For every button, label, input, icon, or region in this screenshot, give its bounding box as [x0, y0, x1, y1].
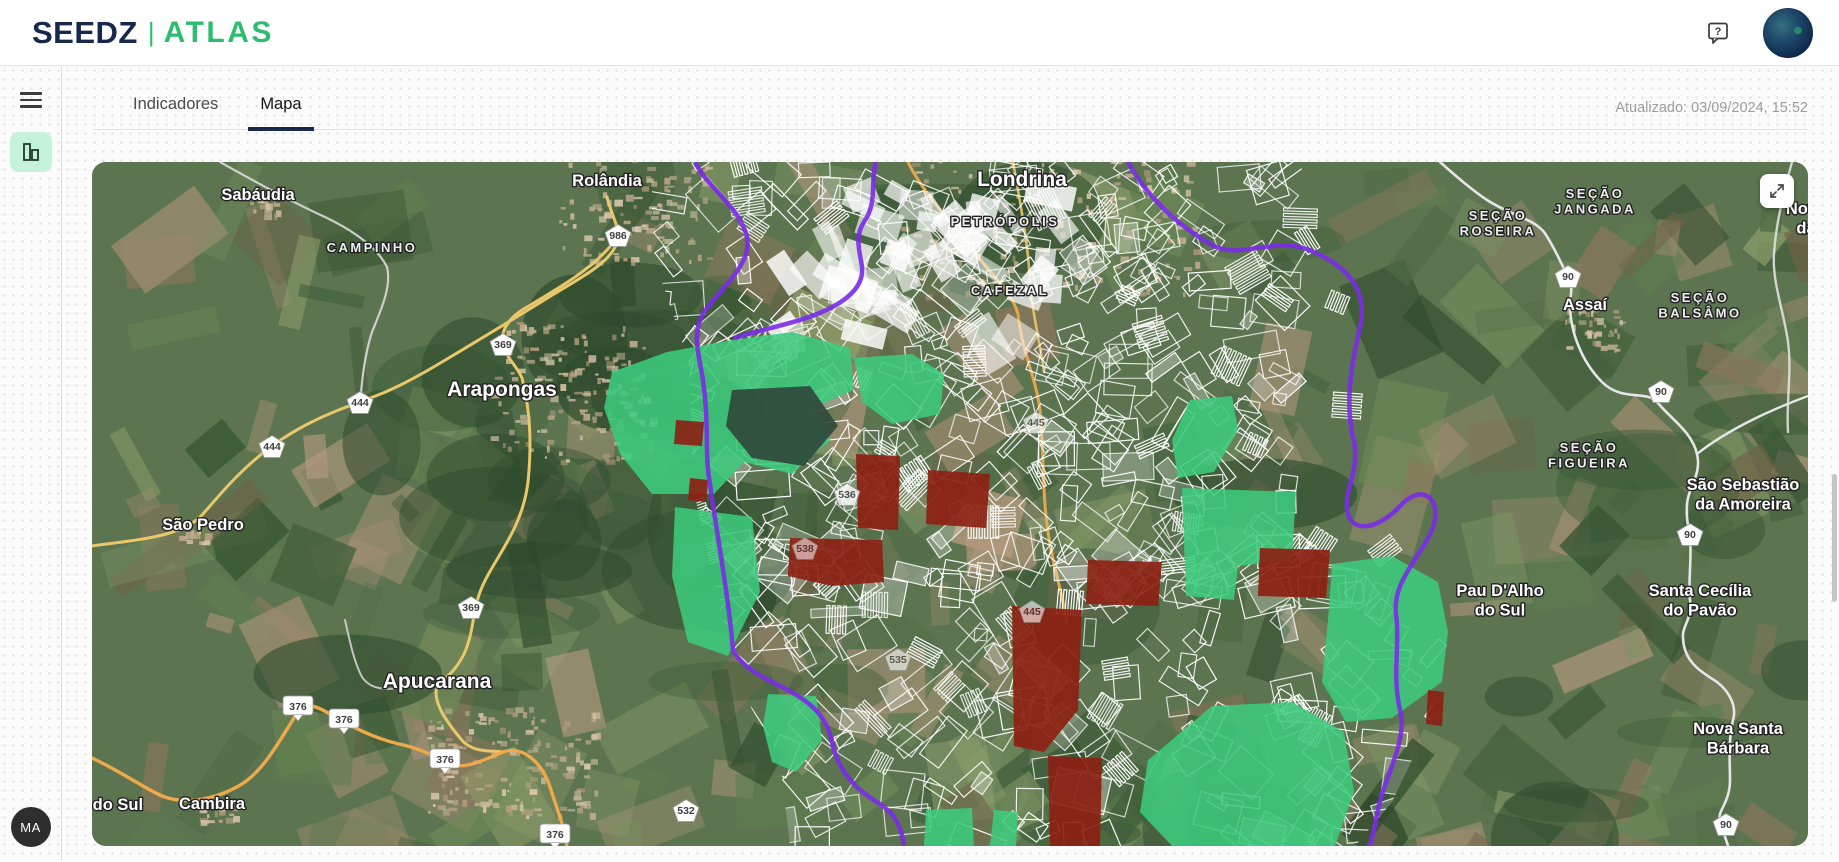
left-sidebar: MA	[0, 66, 62, 861]
map-place-label: Cambira	[179, 795, 246, 813]
overlay-polygon-positive[interactable]	[990, 810, 1018, 846]
overlay-polygon-negative[interactable]	[1048, 756, 1102, 846]
app-header: SEEDZ | ATLAS ?	[0, 0, 1839, 66]
map-place-label: Santa Cecíliado Pavão	[1649, 582, 1753, 619]
map-place-label: Londrina	[977, 168, 1067, 191]
last-updated-text: Atualizado: 03/09/2024, 15:52	[1615, 100, 1808, 129]
map-place-label: São Sebastiãoda Amoreira	[1687, 476, 1800, 513]
overlay-polygon-negative[interactable]	[1086, 560, 1162, 606]
brand-separator: |	[148, 17, 155, 48]
svg-text:444: 444	[351, 397, 369, 409]
map-place-label: Apucarana	[383, 670, 492, 693]
svg-text:536: 536	[838, 489, 856, 501]
page-scrollbar-thumb[interactable]	[1832, 474, 1837, 602]
svg-text:90: 90	[1562, 271, 1574, 283]
map-canvas[interactable]: 9863694444443693763763763765325365384454…	[92, 162, 1808, 846]
svg-text:90: 90	[1720, 819, 1732, 831]
brand-seedz: SEEDZ	[32, 15, 138, 51]
overlay-polygon-negative[interactable]	[1426, 690, 1444, 726]
svg-text:376: 376	[289, 701, 307, 713]
svg-text:90: 90	[1655, 386, 1667, 398]
map-place-label: Rolândia	[572, 172, 642, 190]
brand-logo: SEEDZ | ATLAS	[32, 15, 274, 51]
map-place-label: SEÇÃOJANGADA	[1554, 186, 1636, 216]
bar-chart-icon	[20, 141, 42, 163]
user-avatar-image[interactable]	[1763, 8, 1813, 58]
brand-atlas: ATLAS	[164, 16, 274, 50]
map-place-label: São Pedro	[162, 516, 244, 534]
svg-text:376: 376	[335, 714, 353, 726]
tabs: Indicadores Mapa	[92, 95, 323, 129]
svg-text:376: 376	[436, 754, 454, 766]
svg-text:538: 538	[796, 543, 814, 555]
map-place-label: Sabáudia	[221, 186, 295, 204]
svg-text:535: 535	[889, 654, 907, 666]
map-container: 9863694444443693763763763765325365384454…	[92, 162, 1808, 846]
svg-text:445: 445	[1027, 417, 1045, 429]
map-place-label: CAMPINHO	[327, 240, 418, 255]
map-place-label: SEÇÃOFIGUEIRA	[1548, 440, 1630, 470]
user-initials-badge[interactable]: MA	[11, 807, 51, 847]
map-place-label: SEÇÃOBALSÂMO	[1658, 290, 1741, 320]
overlay-polygon-negative[interactable]	[926, 470, 990, 528]
hamburger-menu-icon[interactable]	[20, 92, 42, 108]
svg-text:445: 445	[1023, 606, 1041, 618]
overlay-polygon-negative[interactable]	[688, 478, 708, 502]
tab-indicadores[interactable]: Indicadores	[112, 95, 239, 129]
map-place-label: PETRÓPOLIS	[951, 214, 1060, 229]
svg-text:532: 532	[677, 805, 695, 817]
tab-mapa[interactable]: Mapa	[239, 95, 322, 129]
overlay-polygon-negative[interactable]	[1258, 548, 1330, 598]
road-shield: 376	[540, 824, 570, 846]
svg-text:369: 369	[462, 602, 480, 614]
overlay-polygon-negative[interactable]	[674, 420, 704, 446]
svg-text:369: 369	[494, 339, 512, 351]
map-place-label: Arapongas	[447, 378, 557, 401]
tab-bar: Indicadores Mapa Atualizado: 03/09/2024,…	[92, 66, 1808, 130]
expand-icon	[1768, 182, 1786, 200]
overlay-polygon-negative[interactable]	[856, 454, 900, 530]
svg-text:376: 376	[546, 829, 564, 841]
map-place-label: CAFEZAL	[971, 283, 1049, 298]
map-place-label: a do Sul	[92, 796, 143, 814]
sidebar-item-indicators[interactable]	[10, 132, 52, 172]
map-place-label: Assaí	[1563, 296, 1608, 314]
svg-text:?: ?	[1715, 26, 1722, 38]
main-panel: Indicadores Mapa Atualizado: 03/09/2024,…	[62, 66, 1839, 846]
help-button[interactable]: ?	[1703, 18, 1733, 48]
svg-text:90: 90	[1684, 529, 1696, 541]
svg-text:986: 986	[609, 230, 627, 242]
map-place-label: SEÇÃOROSEIRA	[1460, 208, 1537, 238]
overlay-polygon-positive[interactable]	[924, 808, 974, 846]
seedz-atlas-app: { "header": { "brand_primary": "SEEDZ", …	[0, 0, 1839, 862]
svg-text:444: 444	[263, 441, 281, 453]
content-area: MA Indicadores Mapa Atualizado: 03/09/20…	[0, 66, 1839, 861]
chat-question-icon: ?	[1705, 20, 1731, 46]
fullscreen-button[interactable]	[1760, 174, 1794, 208]
header-actions: ?	[1703, 8, 1813, 58]
